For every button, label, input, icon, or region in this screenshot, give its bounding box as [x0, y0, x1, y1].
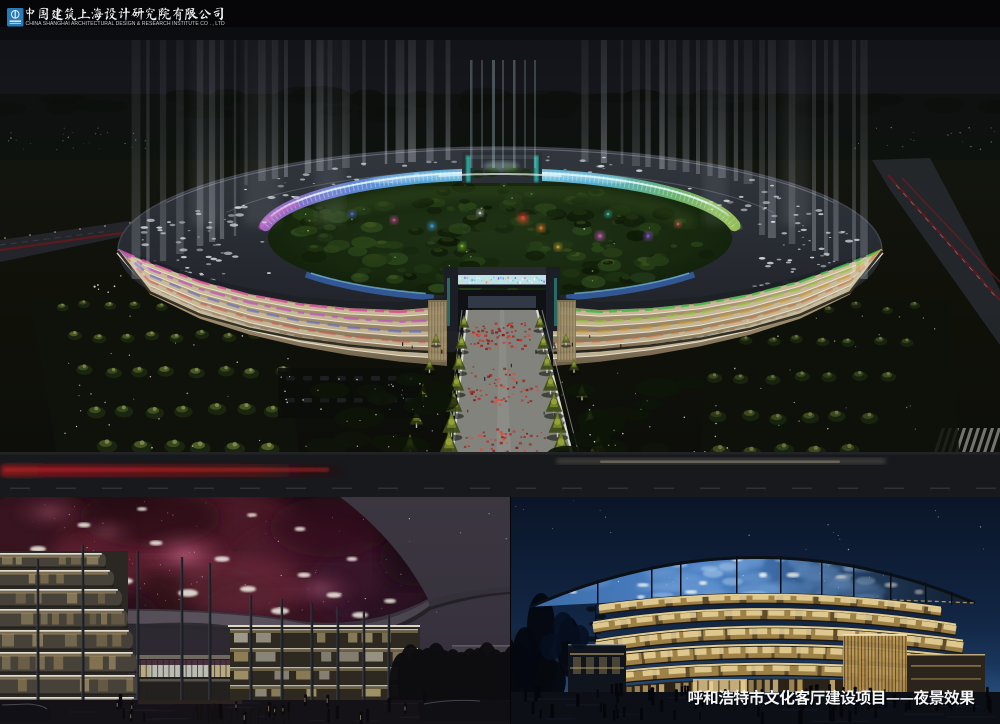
- svg-text:CHINA SHANGHAI ARCHITECTURAL: CHINA SHANGHAI ARCHITECTURAL DESIGN & RE…: [26, 21, 225, 27]
